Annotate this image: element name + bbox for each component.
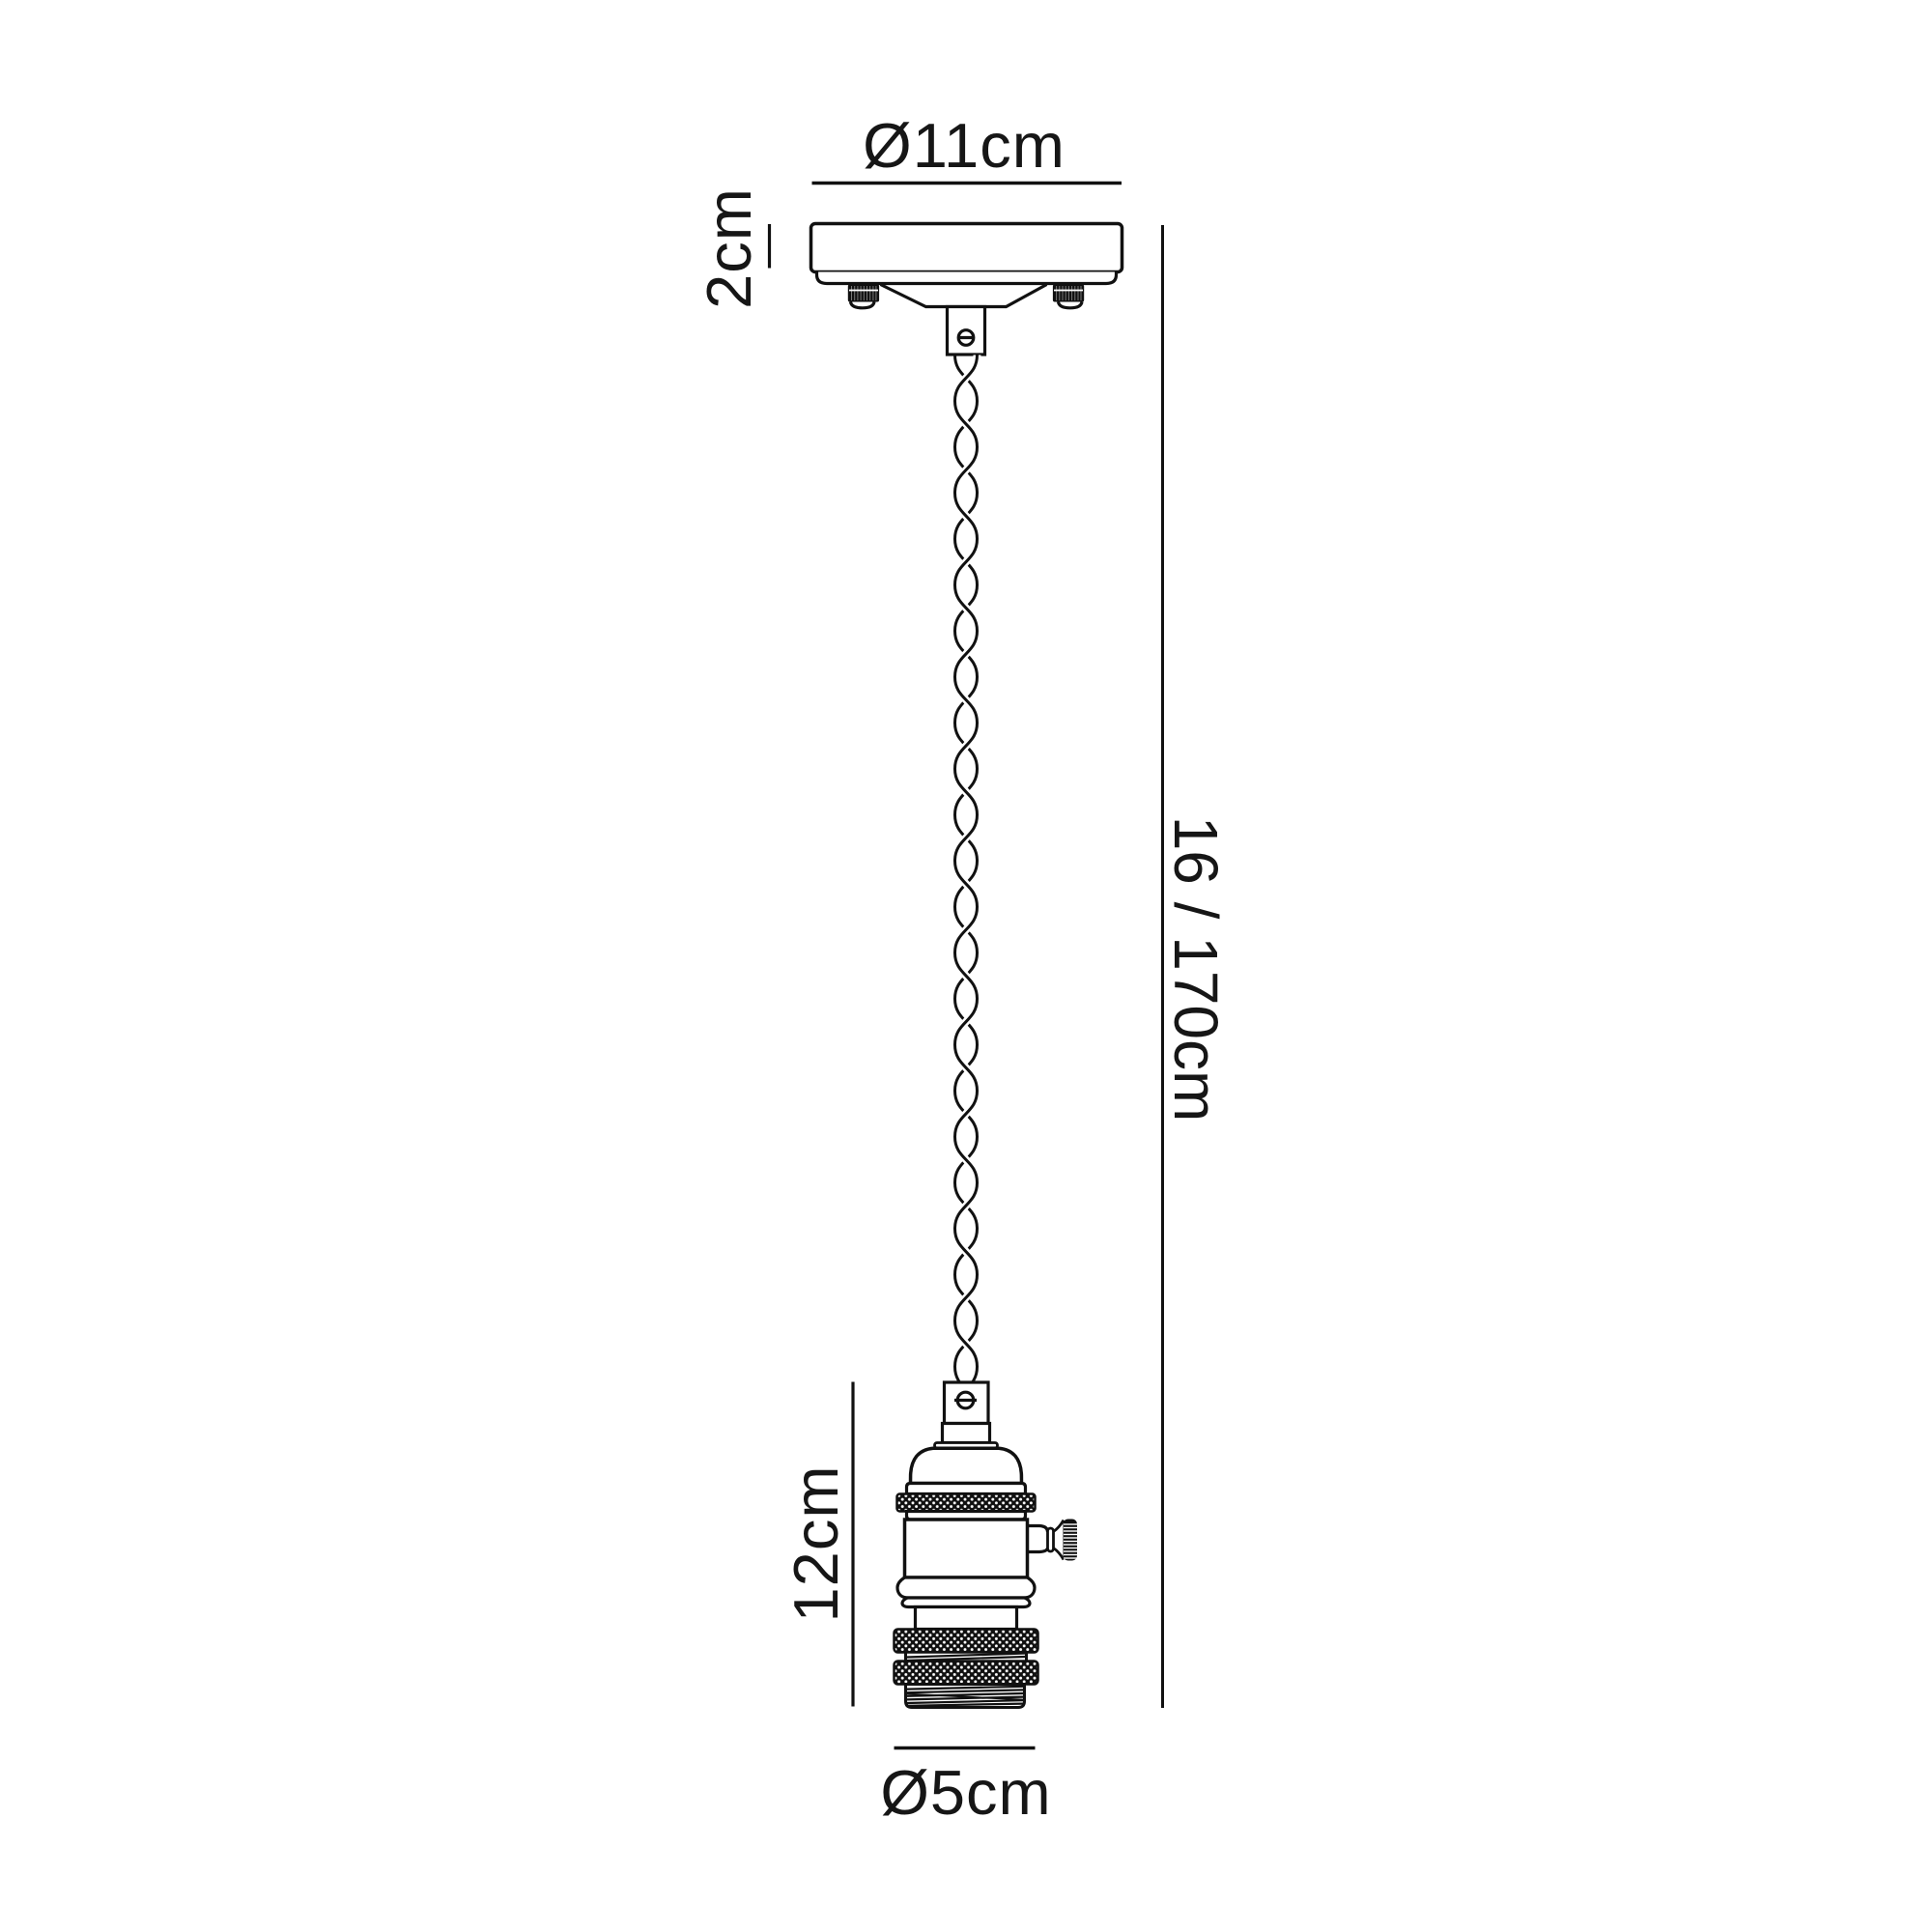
svg-text:Ø5cm: Ø5cm [880, 1757, 1051, 1828]
svg-text:2cm: 2cm [694, 187, 764, 309]
svg-text:Ø11cm: Ø11cm [863, 110, 1065, 181]
svg-text:16 / 170cm: 16 / 170cm [1161, 816, 1231, 1122]
svg-text:12cm: 12cm [781, 1465, 851, 1623]
